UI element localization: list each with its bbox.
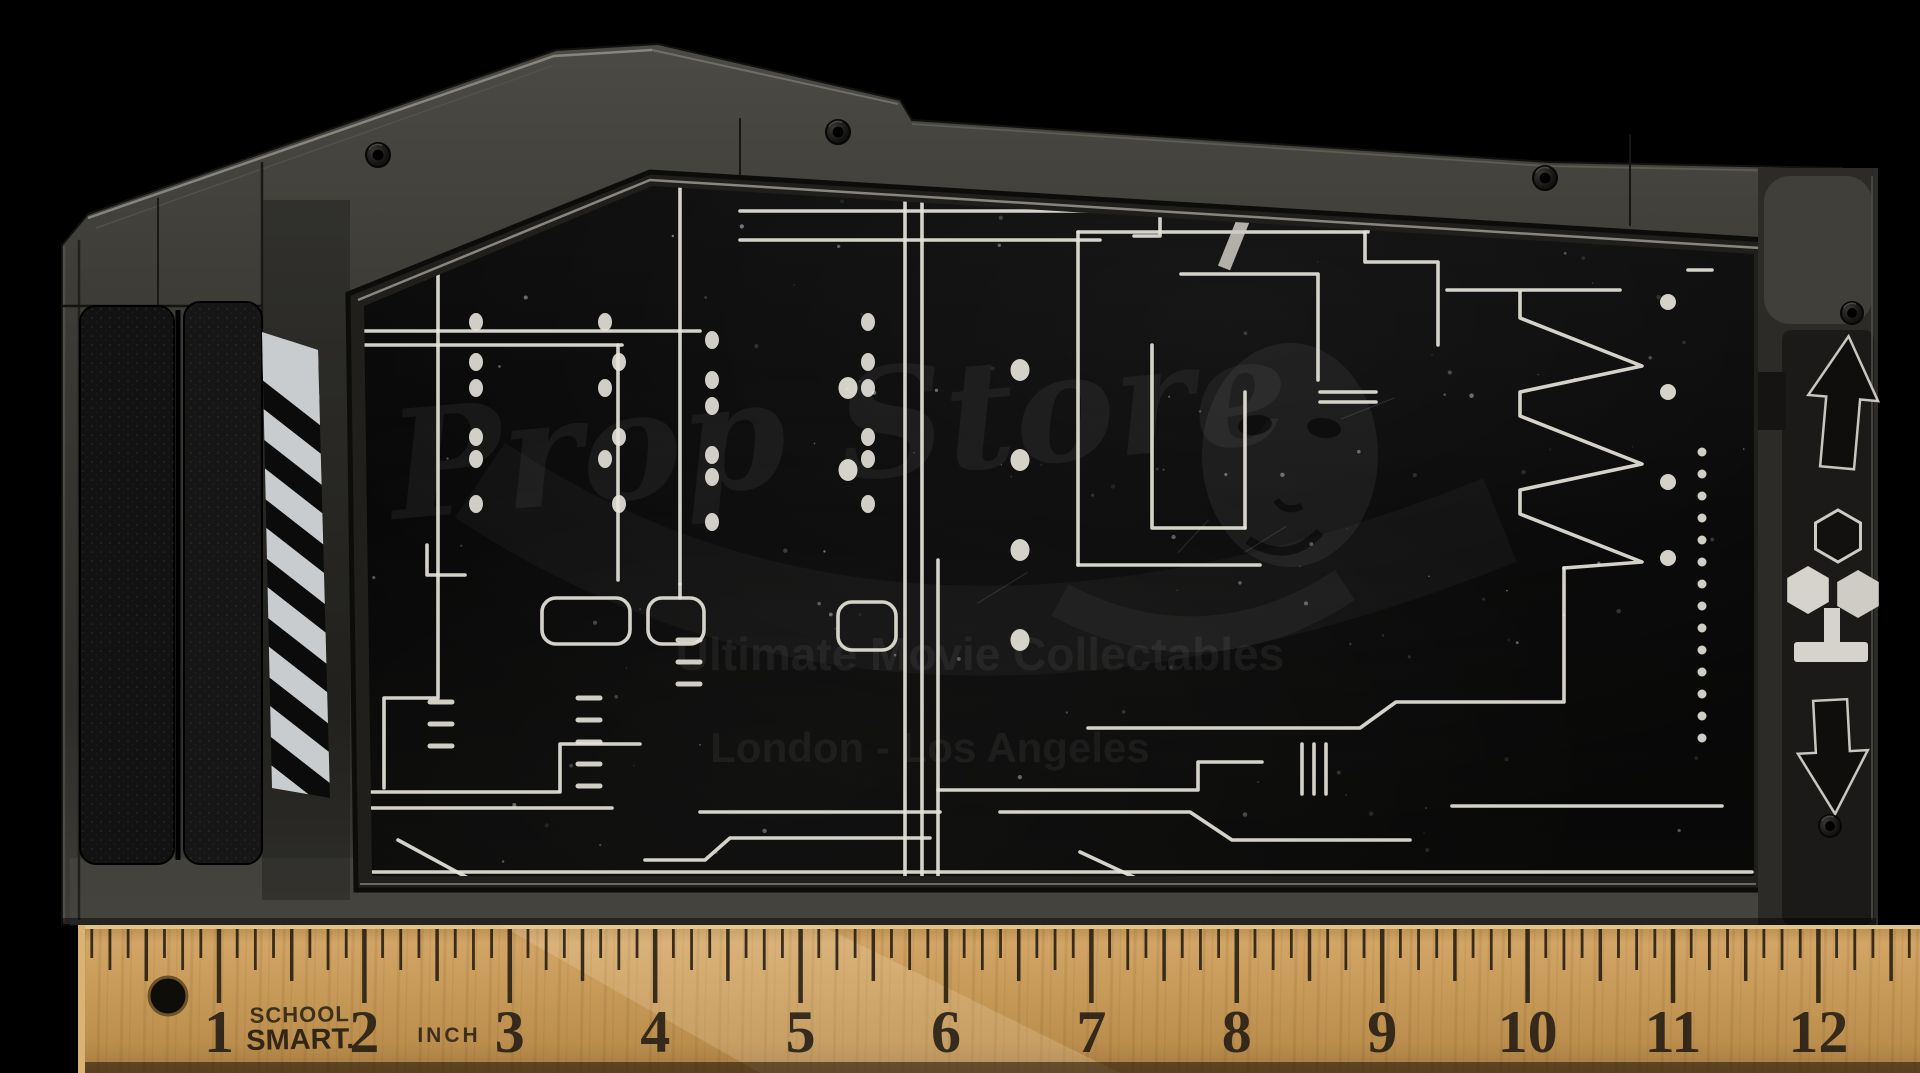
ruler-number: 8 (1222, 999, 1252, 1065)
grip-strip-right-texture (184, 302, 262, 864)
ruler-top-edge-light (78, 925, 1920, 929)
right-panel (1758, 168, 1883, 925)
photo-scene: Prop Store Ultimate Movie Collectables L… (0, 0, 1920, 1073)
ruler-hang-hole (149, 977, 187, 1015)
watermark-line1: Ultimate Movie Collectables (676, 628, 1284, 680)
ruler-number: 5 (786, 999, 816, 1065)
leather-grip (80, 302, 262, 864)
ruler-number: 11 (1645, 999, 1702, 1065)
screen-assembly: Prop Store Ultimate Movie Collectables L… (348, 148, 1768, 890)
ruler-number: 3 (495, 999, 525, 1065)
ruler-number: 7 (1076, 999, 1106, 1065)
ruler-number: 10 (1498, 999, 1558, 1065)
watermark-line2: London - Los Angeles (710, 724, 1149, 771)
ruler-end-grain (78, 925, 85, 1073)
prop-photo: Prop Store Ultimate Movie Collectables L… (0, 0, 1920, 1073)
ruler: 123456789101112 SCHOOL SMART. INCH (78, 925, 1920, 1073)
ruler-number: 9 (1367, 999, 1397, 1065)
grip-strip-left-texture (80, 306, 174, 864)
ruler-number: 1 (204, 999, 234, 1065)
right-panel-notch (1758, 372, 1786, 430)
ruler-number: 6 (931, 999, 961, 1065)
ruler-number: 4 (640, 999, 670, 1065)
ruler-unit-label: INCH (417, 1024, 480, 1047)
ruler-brand-stamp: SCHOOL SMART. (246, 1001, 355, 1057)
ruler-brand-line2: SMART. (246, 1023, 354, 1057)
ruler-number: 12 (1788, 999, 1848, 1065)
